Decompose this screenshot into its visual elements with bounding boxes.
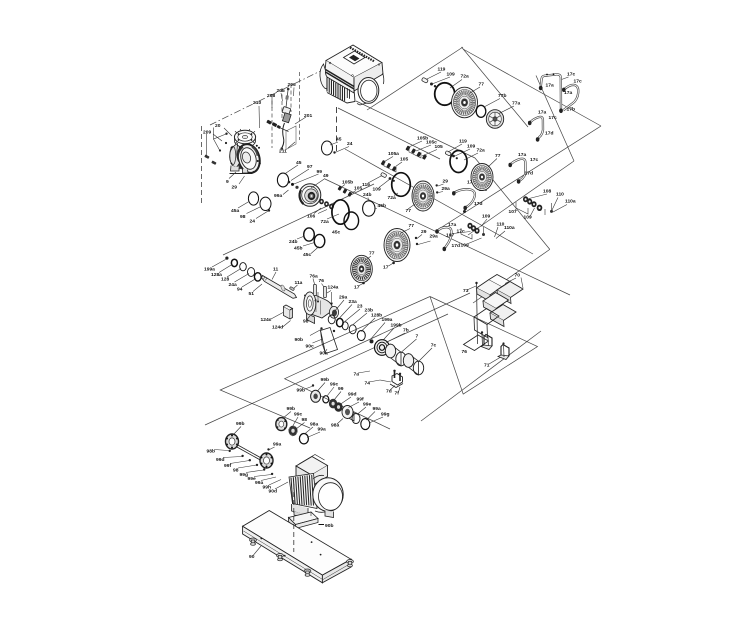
svg-text:90b: 90b [295,337,303,343]
svg-text:29: 29 [421,229,427,235]
svg-text:17d: 17d [452,243,460,249]
svg-text:76: 76 [319,278,325,284]
svg-text:211: 211 [279,149,287,155]
svg-text:99b: 99b [297,388,305,394]
svg-text:72a: 72a [388,195,396,201]
svg-text:98: 98 [240,214,246,220]
svg-text:45b: 45b [294,246,302,252]
svg-text:45: 45 [296,160,302,166]
svg-text:17b: 17b [567,107,575,113]
svg-text:90d: 90d [269,489,277,495]
svg-text:17a: 17a [546,83,554,89]
svg-text:74: 74 [365,381,371,387]
svg-text:99b: 99b [287,406,295,412]
svg-text:23a: 23a [349,299,357,305]
svg-text:7c: 7c [431,343,437,349]
svg-text:110a: 110a [565,199,576,205]
svg-text:209: 209 [203,130,211,136]
svg-text:90a: 90a [320,351,328,357]
svg-text:119: 119 [438,67,446,73]
svg-text:109: 109 [482,214,490,220]
svg-text:45b: 45b [378,203,386,209]
svg-text:17a: 17a [564,90,572,96]
svg-text:105a: 105a [388,151,399,157]
svg-text:109: 109 [467,144,475,150]
svg-text:109: 109 [373,187,381,193]
svg-text:208: 208 [267,93,275,99]
svg-text:98: 98 [303,319,309,325]
svg-text:23: 23 [357,304,363,310]
svg-text:51: 51 [249,291,255,297]
svg-text:119: 119 [459,139,467,145]
svg-text:128b: 128b [371,313,382,319]
svg-text:119: 119 [362,182,370,188]
svg-text:76a: 76a [310,274,318,280]
svg-text:76: 76 [462,349,468,355]
svg-text:72a: 72a [477,148,485,154]
svg-text:45: 45 [336,137,342,143]
svg-text:17c: 17c [530,157,538,163]
svg-text:72a: 72a [461,74,469,80]
svg-text:24: 24 [347,141,353,147]
svg-text:128: 128 [221,277,229,283]
svg-text:17d: 17d [474,201,482,207]
svg-text:110: 110 [556,192,564,198]
svg-text:99f: 99f [224,463,231,469]
svg-text:206: 206 [288,82,296,88]
svg-text:99d: 99d [348,392,356,398]
svg-text:17d: 17d [525,171,533,177]
svg-text:99a: 99a [373,406,381,412]
svg-text:45c: 45c [332,230,340,236]
svg-text:105: 105 [435,144,443,150]
svg-text:7: 7 [416,334,419,340]
svg-text:106: 106 [307,214,315,220]
svg-text:17c: 17c [567,72,575,78]
svg-text:77: 77 [369,251,375,257]
svg-text:29a: 29a [339,295,347,301]
svg-text:124d: 124d [272,325,283,331]
svg-text:124c: 124c [261,317,272,323]
svg-text:90c: 90c [306,344,314,350]
svg-text:45a: 45a [231,208,239,214]
svg-text:29a: 29a [430,234,438,240]
svg-text:49: 49 [323,173,329,179]
svg-text:17a: 17a [448,222,456,228]
svg-text:199b: 199b [391,323,402,329]
svg-text:199a: 199a [204,267,215,273]
svg-text:24: 24 [250,219,256,225]
svg-text:99d: 99d [216,457,224,463]
svg-text:77: 77 [495,153,501,159]
svg-text:110a: 110a [504,225,515,231]
svg-text:99a: 99a [273,442,281,448]
svg-text:17a: 17a [518,152,526,158]
svg-text:17c: 17c [574,79,582,85]
svg-text:20: 20 [215,123,221,129]
svg-text:199a: 199a [382,317,393,323]
svg-text:99a: 99a [318,427,326,433]
svg-text:99b: 99b [236,421,244,427]
svg-text:99e: 99e [363,402,371,408]
svg-text:94: 94 [237,287,243,293]
svg-text:77: 77 [409,223,415,229]
svg-text:99c: 99c [294,412,302,418]
svg-text:72a: 72a [321,219,329,225]
svg-text:11a: 11a [295,280,303,286]
svg-text:24b: 24b [289,239,297,245]
svg-text:24a: 24a [229,282,237,288]
svg-text:24b: 24b [363,192,371,198]
svg-text:99b: 99b [321,377,329,383]
svg-text:77: 77 [479,82,485,88]
svg-text:97: 97 [307,164,313,170]
svg-text:7b: 7b [403,328,409,334]
svg-text:108: 108 [543,189,551,195]
svg-text:105: 105 [400,157,408,163]
svg-text:77a: 77a [512,101,520,107]
svg-text:210: 210 [253,100,261,106]
svg-text:109: 109 [447,72,455,78]
svg-text:98: 98 [302,417,308,423]
svg-text:77b: 77b [498,93,506,99]
svg-text:98a: 98a [331,423,339,429]
svg-text:99: 99 [317,169,323,175]
svg-text:71: 71 [484,363,490,369]
svg-text:17c: 17c [549,115,557,121]
svg-text:201: 201 [304,113,312,119]
svg-text:98: 98 [233,468,239,474]
svg-text:29: 29 [232,185,238,191]
svg-text:105b: 105b [342,180,353,186]
svg-text:17a: 17a [538,110,546,116]
svg-text:99: 99 [338,386,344,392]
svg-text:29a: 29a [442,186,450,192]
svg-text:17d: 17d [545,131,553,137]
svg-text:7a: 7a [354,372,360,378]
svg-text:99g: 99g [381,412,389,418]
svg-text:11: 11 [273,267,278,273]
svg-text:99a: 99a [274,193,282,199]
svg-text:9: 9 [226,179,229,185]
svg-text:17: 17 [383,265,389,271]
svg-text:73: 73 [463,288,469,294]
svg-text:107: 107 [509,209,517,215]
svg-text:90b: 90b [325,523,333,529]
svg-text:29: 29 [443,179,449,185]
svg-text:124a: 124a [328,285,339,291]
svg-text:98b: 98b [207,449,215,455]
svg-text:45c: 45c [303,252,311,258]
svg-text:70: 70 [515,273,521,279]
